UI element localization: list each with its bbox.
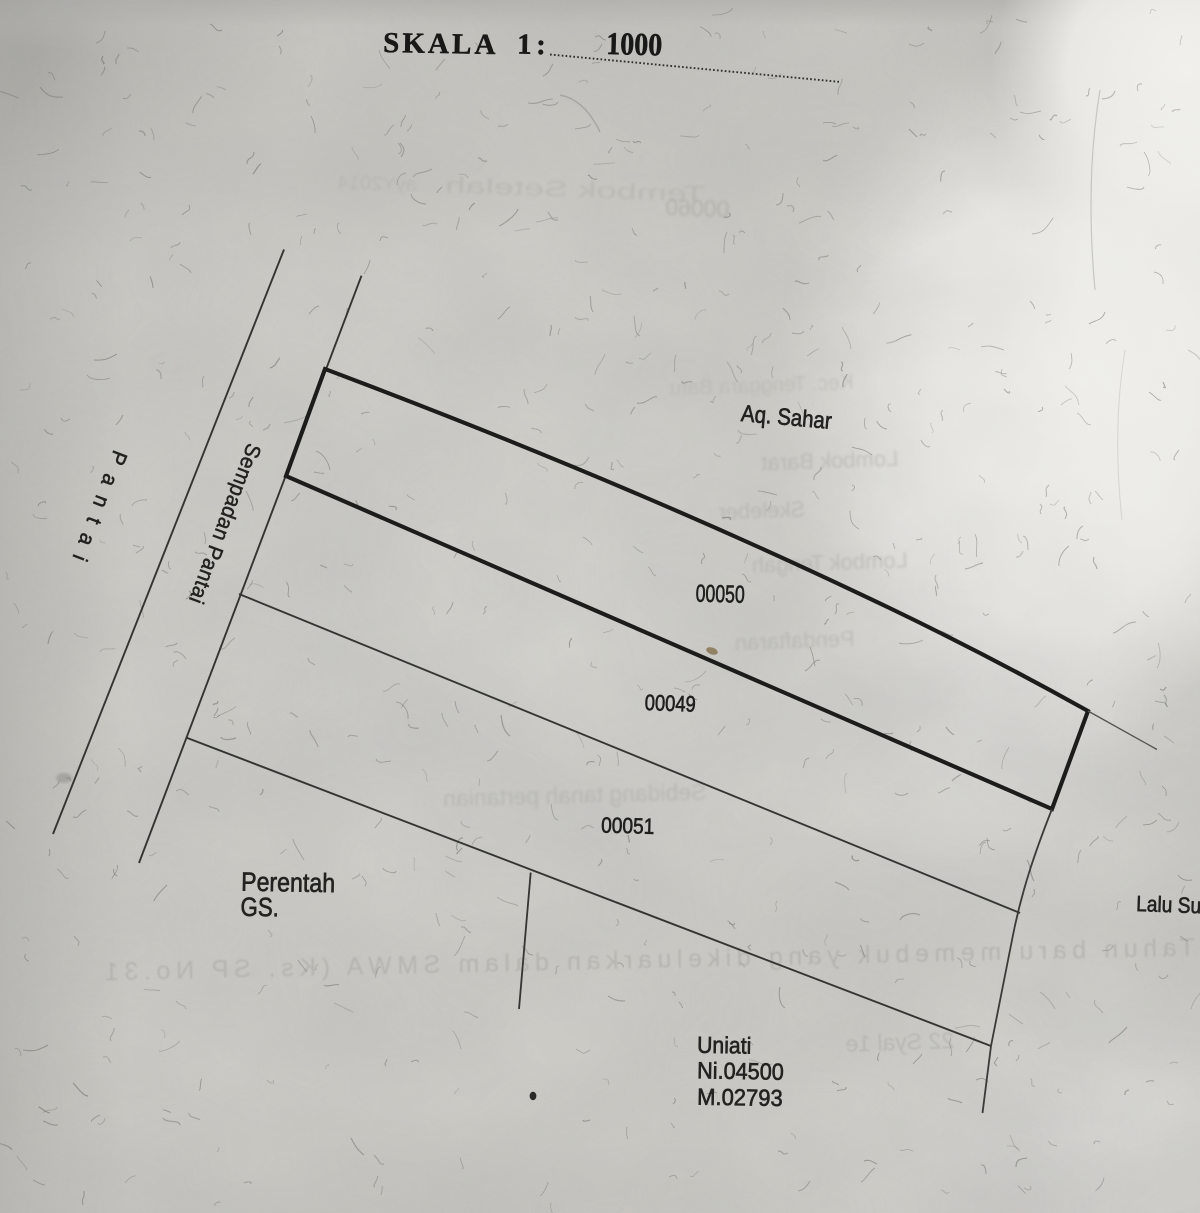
svg-text:00049: 00049 — [644, 690, 696, 717]
svg-text:Lombok Barat: Lombok Barat — [761, 446, 899, 476]
svg-text:22 Syal 1e: 22 Syal 1e — [845, 1027, 955, 1057]
svg-text:00051: 00051 — [601, 813, 655, 839]
svg-text:M.02793: M.02793 — [697, 1083, 783, 1111]
svg-text:Skeleber: Skeleber — [718, 496, 806, 524]
svg-text:00050: 00050 — [695, 580, 745, 609]
svg-text:1000: 1000 — [606, 25, 663, 63]
svg-text:Pendaftaran: Pendaftaran — [734, 626, 855, 655]
svg-text:GS.: GS. — [240, 893, 279, 923]
svg-text:1: 1 — [517, 29, 532, 61]
svg-text:Lalu Sura: Lalu Sura — [1136, 892, 1200, 919]
svg-text:Ni.04500: Ni.04500 — [697, 1058, 784, 1085]
svg-text:Uniati: Uniati — [697, 1032, 752, 1059]
svg-text:ayY2014: ayY2014 — [337, 172, 417, 197]
svg-text::: : — [536, 29, 546, 61]
svg-text:SKALA: SKALA — [383, 27, 499, 61]
